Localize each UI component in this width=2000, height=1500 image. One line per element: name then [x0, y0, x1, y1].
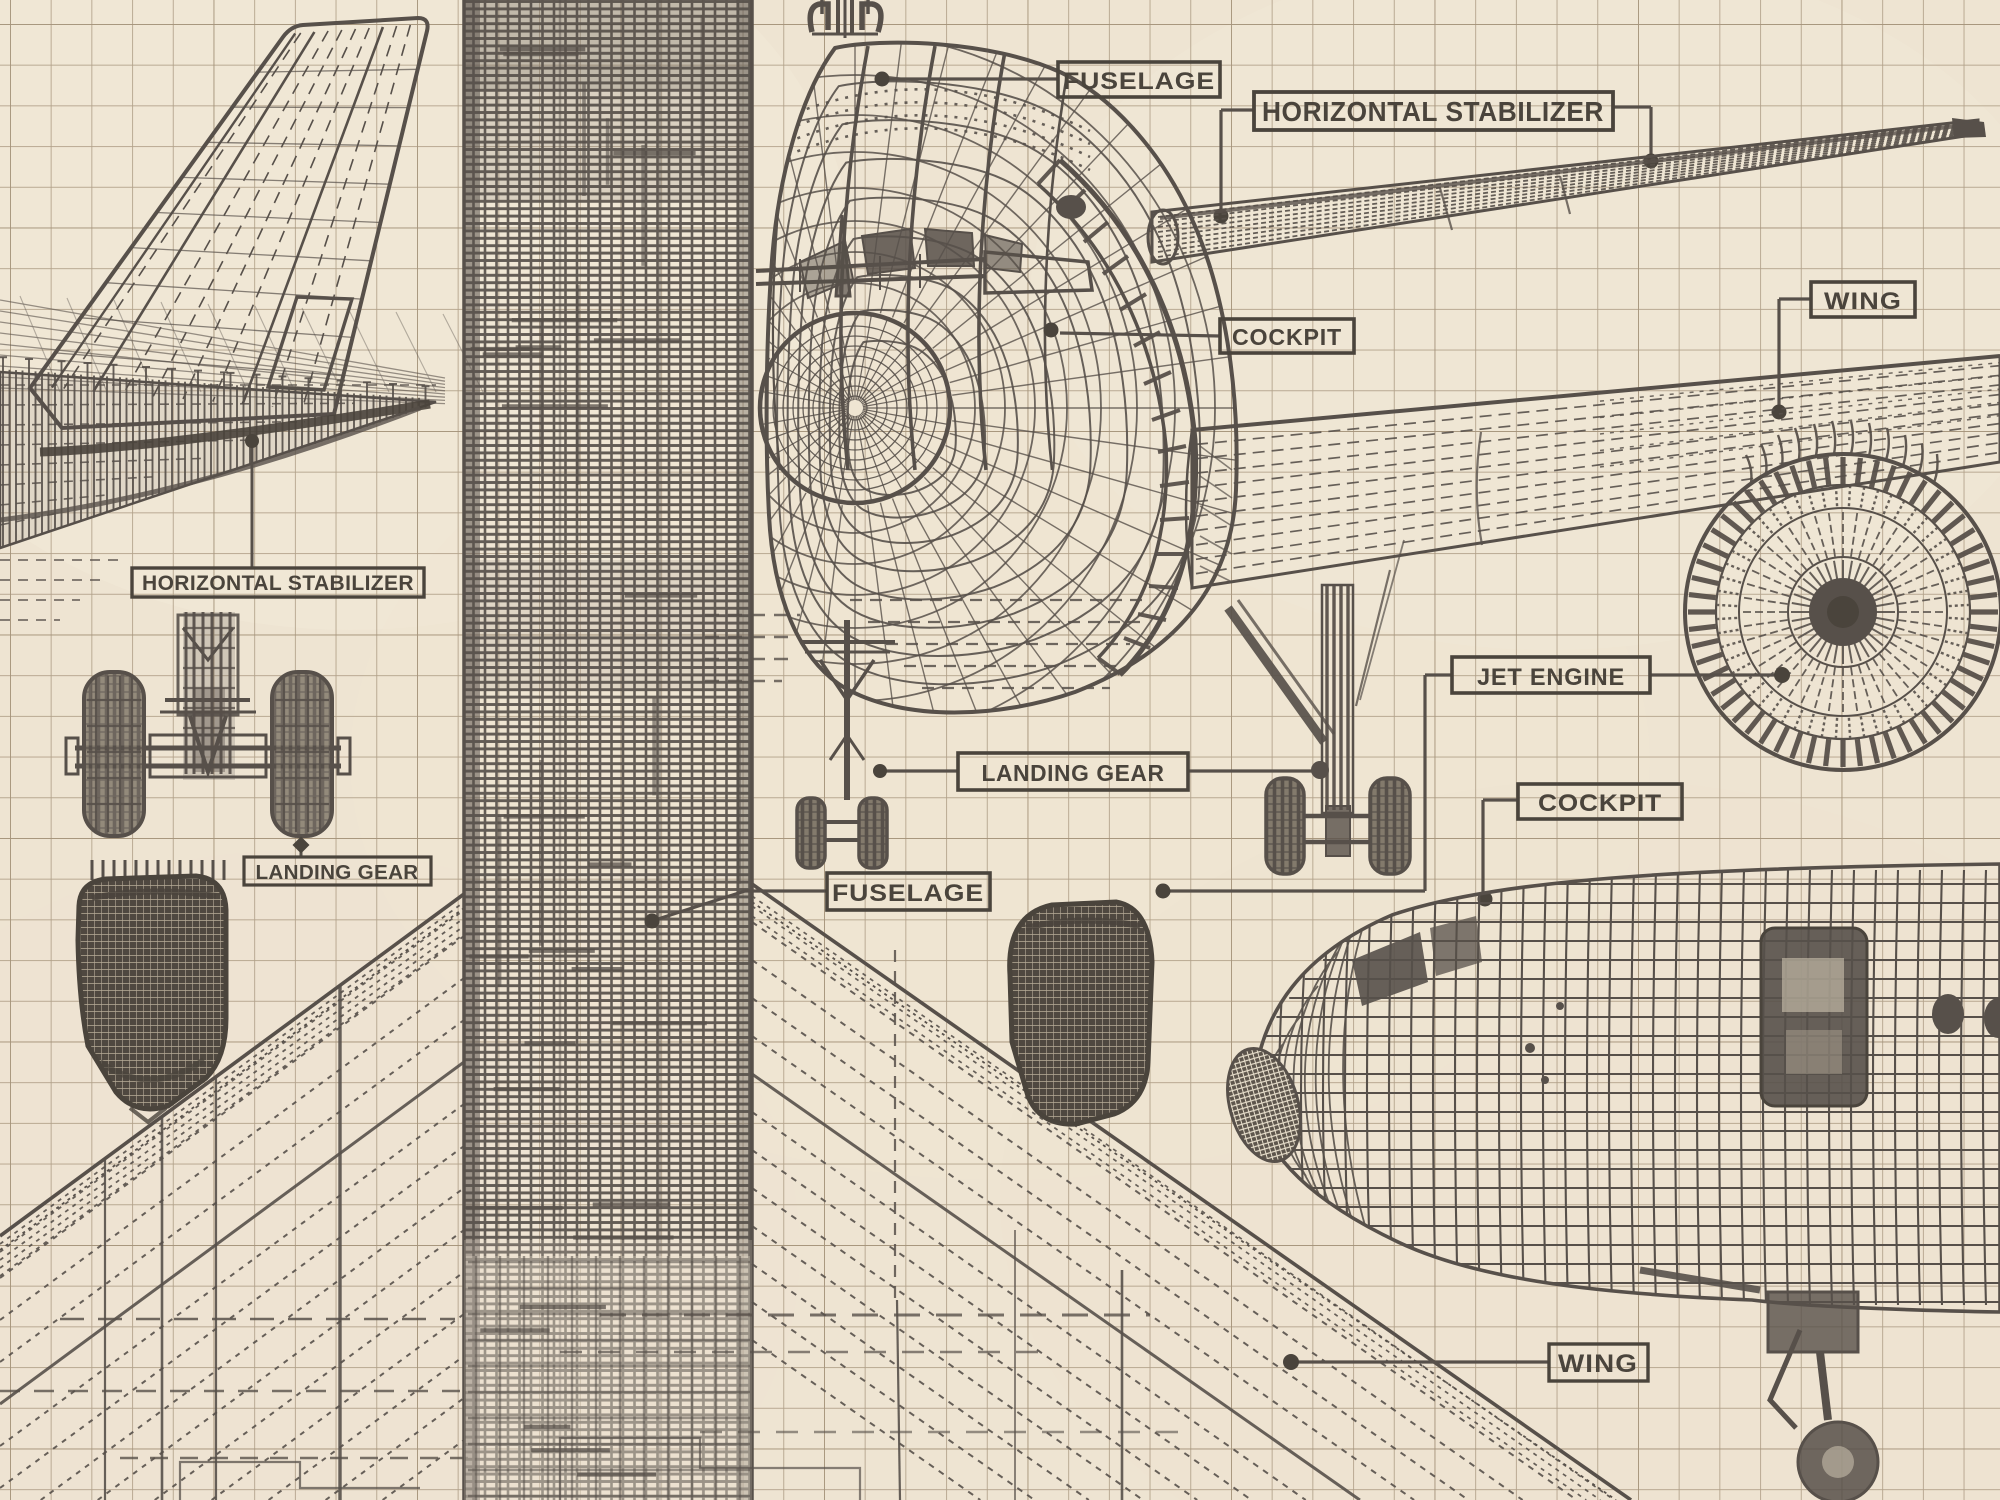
svg-text:FUSELAGE: FUSELAGE — [832, 880, 984, 907]
svg-text:LANDING GEAR: LANDING GEAR — [982, 760, 1165, 786]
svg-text:HORIZONTAL STABILIZER: HORIZONTAL STABILIZER — [1262, 96, 1604, 127]
svg-text:COCKPIT: COCKPIT — [1232, 324, 1342, 350]
svg-text:WING: WING — [1558, 1350, 1638, 1378]
svg-text:LANDING GEAR: LANDING GEAR — [256, 861, 419, 884]
svg-text:HORIZONTAL STABILIZER: HORIZONTAL STABILIZER — [142, 571, 414, 595]
svg-text:FUSELAGE: FUSELAGE — [1063, 68, 1215, 95]
svg-text:JET ENGINE: JET ENGINE — [1477, 664, 1625, 691]
svg-text:COCKPIT: COCKPIT — [1538, 790, 1662, 817]
svg-text:WING: WING — [1824, 288, 1902, 315]
